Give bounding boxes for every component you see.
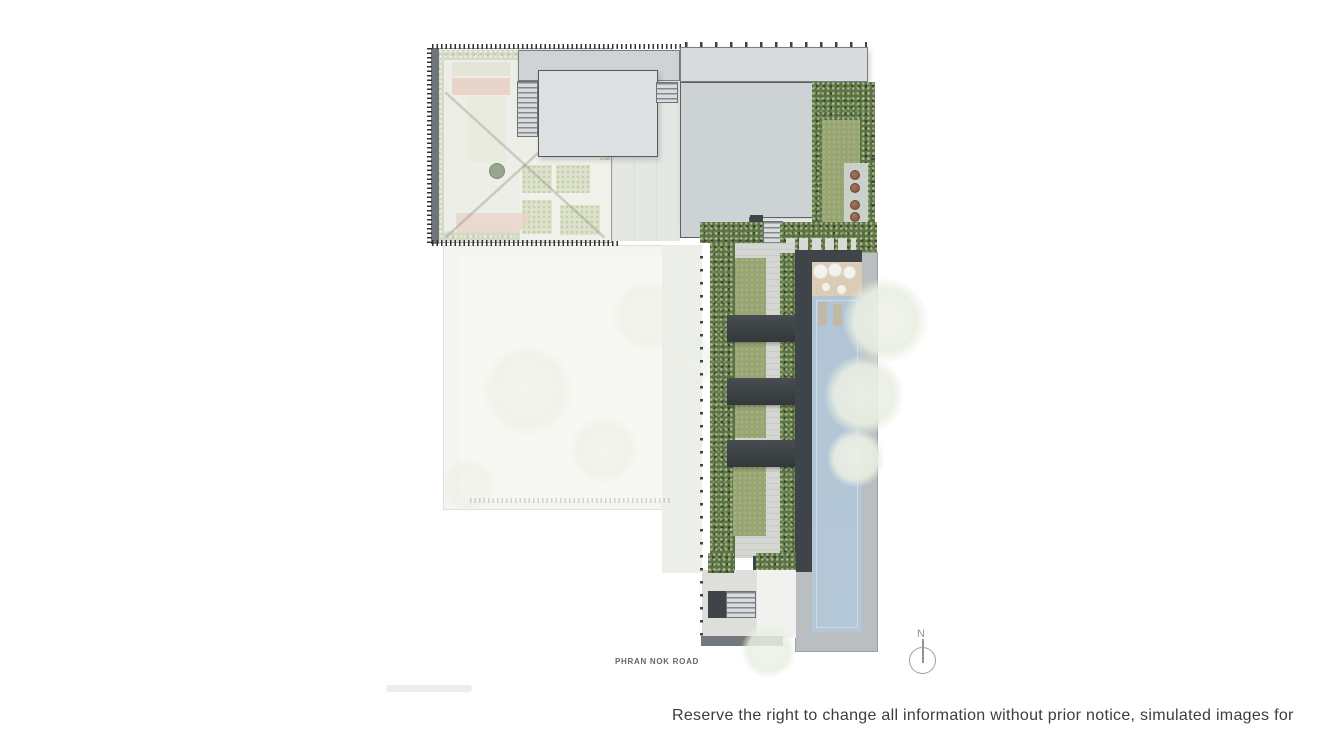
hatch-left-edge xyxy=(427,48,432,245)
disclaimer-text: Reserve the right to change all informat… xyxy=(672,707,1294,725)
faded-tree xyxy=(827,429,885,487)
hatch-bottom-edge xyxy=(432,240,618,246)
pergola-bar xyxy=(727,315,795,342)
pool-top-wall xyxy=(795,250,862,262)
roof-block-right xyxy=(680,82,817,218)
roof-block-center xyxy=(538,70,658,157)
hedge-left-column xyxy=(710,243,735,573)
ghost-watermark xyxy=(386,685,472,692)
stair-left xyxy=(517,81,538,137)
garden-band xyxy=(452,62,510,76)
faded-hatch-edge xyxy=(470,498,670,503)
planter-pot xyxy=(850,170,860,180)
lawn-patch xyxy=(733,466,766,536)
hedge-patch xyxy=(708,553,734,573)
pool-side-wall xyxy=(795,250,812,572)
lawn-patch xyxy=(735,405,766,438)
faded-tree xyxy=(480,343,575,438)
planter-pot xyxy=(850,212,860,222)
north-letter: N xyxy=(917,628,925,640)
faded-tree xyxy=(843,278,928,363)
pergola-bar xyxy=(727,440,795,467)
garden-left-wall xyxy=(431,48,439,244)
lawn-patch xyxy=(735,342,766,378)
lawn-patch xyxy=(735,258,766,315)
hatch-top-edge xyxy=(432,44,682,49)
umbrella-circle-small xyxy=(837,285,846,294)
pergola-bar xyxy=(727,378,795,405)
road-label: PHRAN NOK ROAD xyxy=(615,657,699,666)
boundary-fence xyxy=(700,256,703,640)
site-plan: PHRAN NOK ROAD N Reserve the right to ch… xyxy=(0,0,1342,754)
stair-landing xyxy=(708,591,726,618)
umbrella-circle xyxy=(828,263,842,277)
hedge-patch xyxy=(756,553,796,570)
ticks-top-right-edge xyxy=(685,42,867,47)
planter-pot xyxy=(850,183,860,193)
faded-tree xyxy=(741,623,796,678)
hedge-right-column xyxy=(780,253,795,558)
faded-tree xyxy=(441,458,496,513)
hedge-horizontal xyxy=(700,222,763,243)
umbrella-circle-small xyxy=(822,283,830,291)
umbrella-circle xyxy=(843,266,856,279)
roof-strip-right xyxy=(680,47,868,82)
umbrella-circle xyxy=(813,264,828,279)
faded-tree xyxy=(824,355,904,435)
faded-tree xyxy=(569,415,639,485)
north-circle xyxy=(909,647,936,674)
north-arrow-icon: N xyxy=(905,628,941,678)
pool-lounger xyxy=(818,302,827,326)
planter-pot xyxy=(850,200,860,210)
entry-stairs xyxy=(726,591,756,618)
pool-lounger xyxy=(833,304,842,326)
stair-center xyxy=(656,82,678,103)
